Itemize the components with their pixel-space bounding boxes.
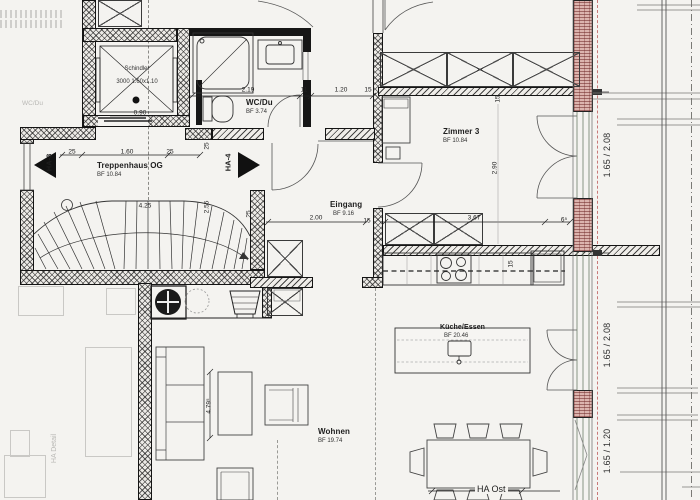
ha4-label: HA-4 xyxy=(223,154,232,172)
room-label-kueche: Küche/Essen xyxy=(440,324,485,331)
elevator-brand: Schindler xyxy=(124,66,149,72)
room-area-wc: BF 3.74 xyxy=(246,109,267,115)
room-label-wohnen: Wohnen xyxy=(318,427,350,436)
staircase xyxy=(34,200,250,270)
elevator-label: Schindler 3000 1.60x1.10 xyxy=(102,60,172,86)
wall-edges xyxy=(20,0,383,190)
room-label-zimmer3: Zimmer 3 xyxy=(443,127,479,136)
furniture xyxy=(156,97,547,500)
ha-ost-label: HA Ost xyxy=(475,484,508,494)
room-label-eingang: Eingang xyxy=(330,200,362,209)
window-lines xyxy=(573,0,609,500)
room-label-treppenhaus: Treppenhaus OG xyxy=(97,161,163,170)
elevator-size: 3000 1.60x1.10 xyxy=(116,79,157,85)
floor-plan-sheet: WC/Du HA Detail xyxy=(0,0,700,500)
room-label-wc: WC/Du xyxy=(246,98,273,107)
kitchen-detail xyxy=(383,251,565,373)
ha3-label: HA-3 xyxy=(44,154,53,172)
room-area-treppenhaus: BF 10.84 xyxy=(97,172,121,178)
balcony-lines xyxy=(593,0,700,500)
room-area-kueche: BF 20.46 xyxy=(444,333,468,339)
room-area-eingang: BF 9.16 xyxy=(333,211,354,217)
room-area-wohnen: BF 19.74 xyxy=(318,438,342,444)
dimension-lines xyxy=(59,93,573,494)
room-area-zimmer3: BF 10.84 xyxy=(443,138,467,144)
stove-detail xyxy=(151,286,300,319)
